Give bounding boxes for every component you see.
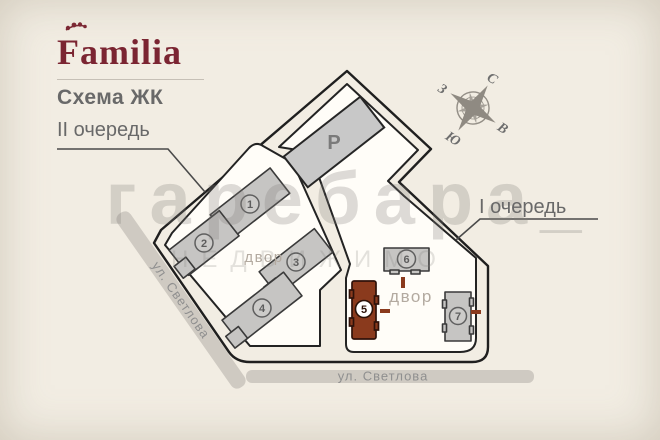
building-2-number: 2 xyxy=(201,238,207,250)
compass-south-label: Ю xyxy=(441,129,463,150)
compass-west-label: З xyxy=(434,81,449,98)
building-7-number: 7 xyxy=(455,311,461,323)
courtyard-left-label: двор xyxy=(244,249,283,266)
building-6-number: 6 xyxy=(403,254,409,266)
entrance-tick-7 xyxy=(471,310,481,314)
phase1-label: I очередь xyxy=(479,196,566,219)
street-bottom-label: ул. Светлова xyxy=(338,369,429,384)
phase2-callout-line xyxy=(57,149,205,192)
building-3-number: 3 xyxy=(293,257,299,269)
parking-label: Р xyxy=(327,132,340,154)
entrance-tick-5 xyxy=(380,309,390,313)
street-bottom-band: ул. Светлова xyxy=(246,369,534,384)
compass-rose: С В Ю З xyxy=(414,51,530,168)
phase2-label: II очередь xyxy=(57,119,150,142)
logo-branch-icon xyxy=(66,22,87,30)
site-plan-screenshot: ул. Светлова ул. Светлова Р xyxy=(0,0,660,440)
phase1-callout-line xyxy=(456,219,598,240)
brand-divider xyxy=(57,79,204,80)
brand-logo-text: Familia xyxy=(57,34,182,70)
compass-north-label: С xyxy=(484,70,501,88)
building-4-number: 4 xyxy=(259,303,266,315)
page-title: Схема ЖК xyxy=(57,86,163,110)
building-1-number: 1 xyxy=(247,199,253,211)
courtyard-right-label: двор xyxy=(389,287,433,306)
building-5-number: 5 xyxy=(361,304,367,316)
compass-east-label: В xyxy=(494,119,511,137)
